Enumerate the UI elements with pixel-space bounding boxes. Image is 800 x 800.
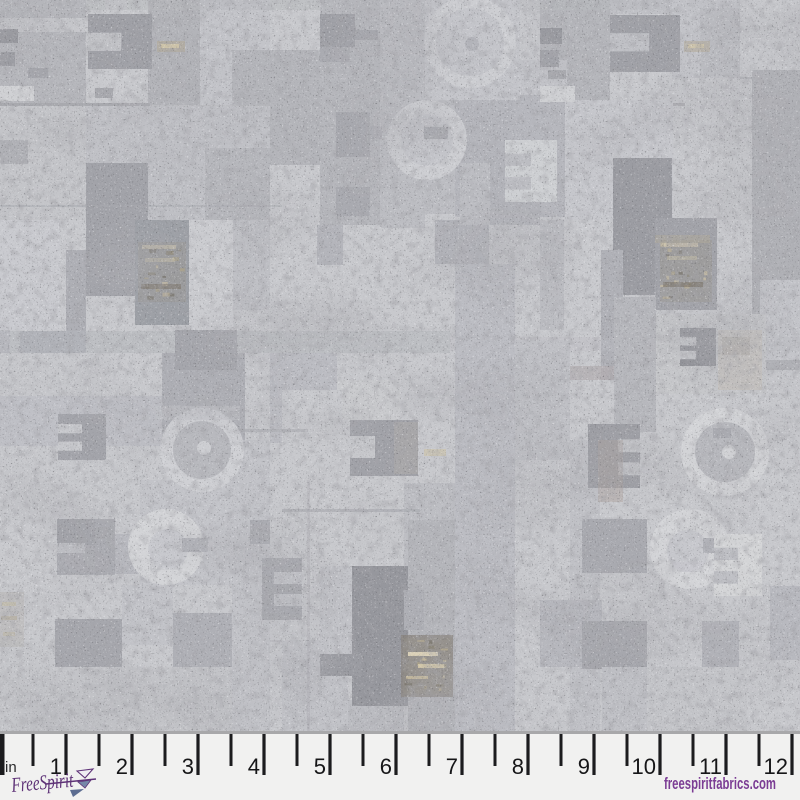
- svg-text:3: 3: [182, 754, 194, 779]
- svg-text:10: 10: [632, 754, 656, 779]
- svg-text:5: 5: [314, 754, 326, 779]
- svg-text:2: 2: [116, 754, 128, 779]
- svg-text:freespiritfabrics.com: freespiritfabrics.com: [664, 774, 776, 793]
- svg-text:4: 4: [248, 754, 260, 779]
- svg-text:7: 7: [446, 754, 458, 779]
- svg-text:8: 8: [512, 754, 524, 779]
- svg-text:6: 6: [380, 754, 392, 779]
- svg-text:9: 9: [578, 754, 590, 779]
